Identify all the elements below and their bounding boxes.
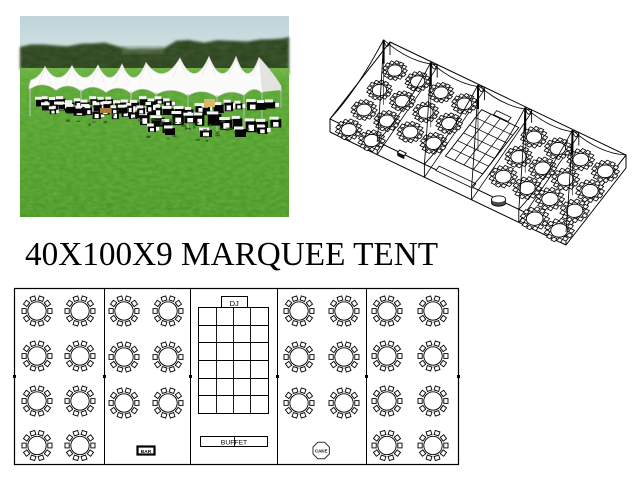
svg-text:40X100X9 MARQUEE TENT: 40X100X9 MARQUEE TENT	[25, 236, 438, 273]
svg-text:BUFFET: BUFFET	[221, 440, 247, 447]
svg-text:DJ: DJ	[230, 299, 239, 308]
svg-text:CAKE: CAKE	[315, 448, 328, 453]
svg-text:BAR: BAR	[141, 449, 152, 455]
